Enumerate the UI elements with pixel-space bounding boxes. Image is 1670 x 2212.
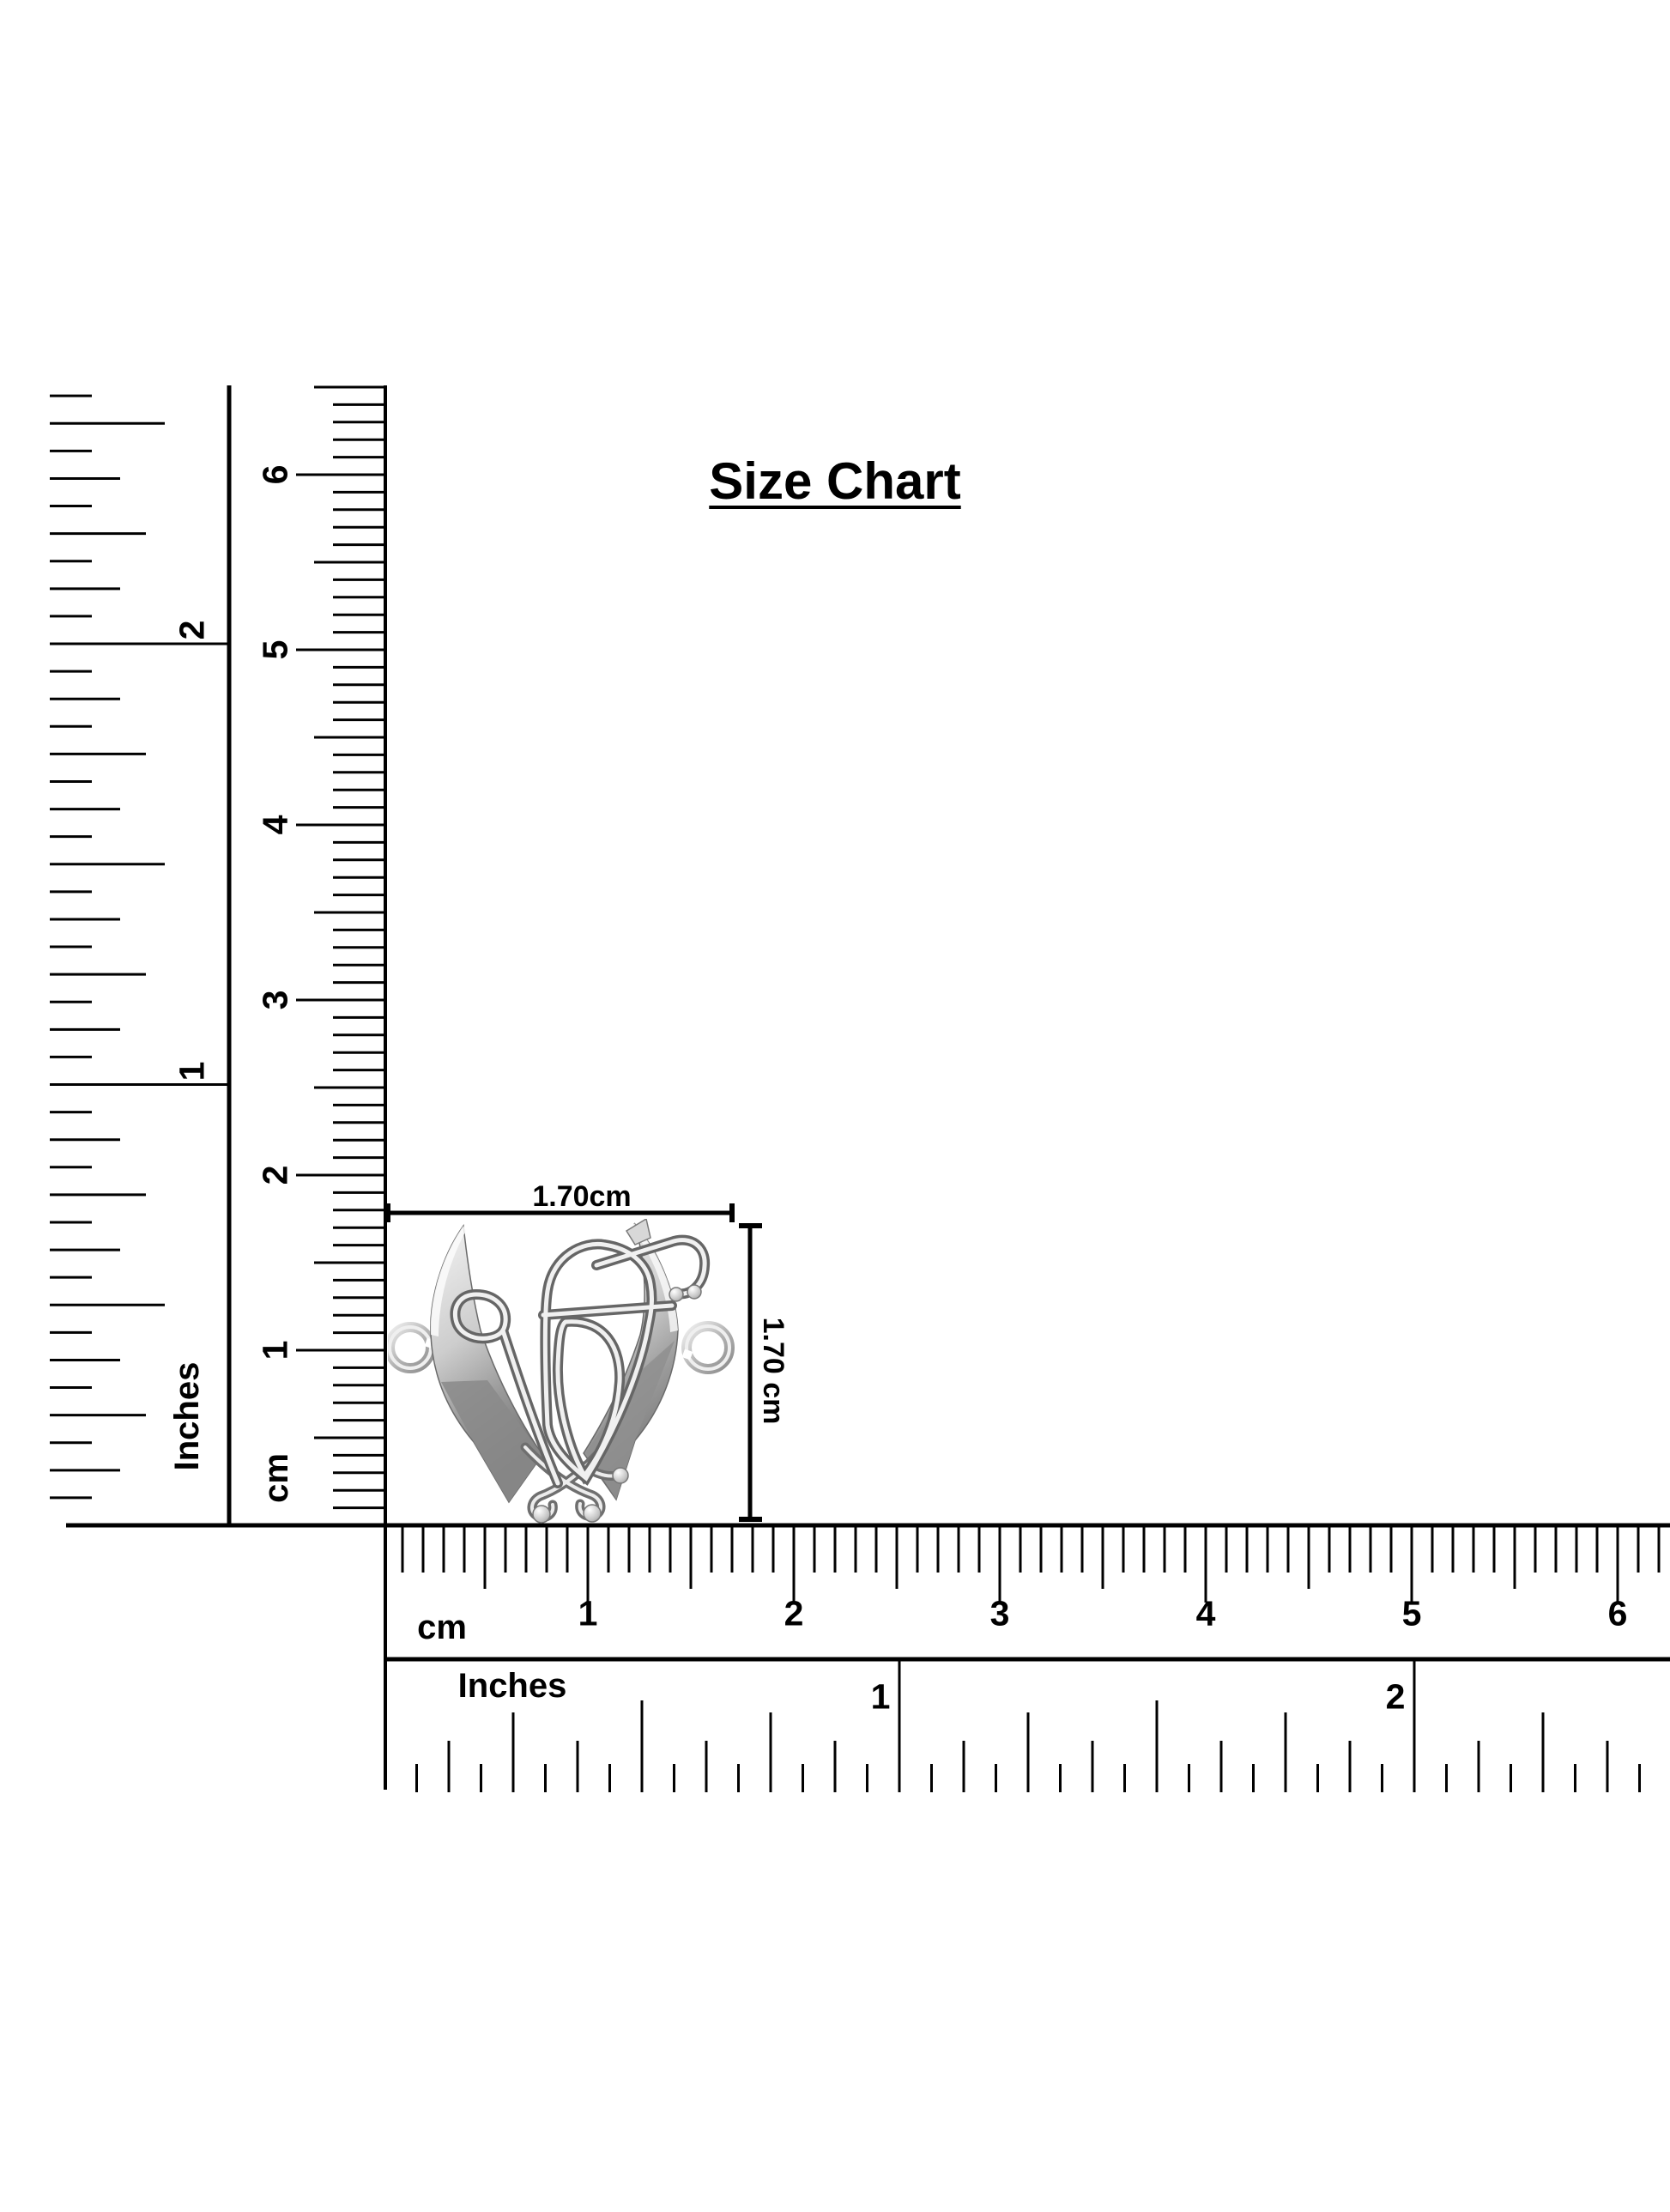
pendant-image (388, 1219, 748, 1528)
vertical-cm-tick-label: 1 (258, 1341, 293, 1361)
ruler-lines-layer (0, 0, 1670, 2212)
left-kirpan-blade (431, 1226, 542, 1502)
right-jump-ring-icon (682, 1326, 729, 1369)
horizontal-cm-tick-label: 1 (578, 1597, 598, 1632)
width-dimension-label: 1.70cm (532, 1182, 631, 1211)
horizontal-cm-tick-label: 3 (990, 1597, 1010, 1632)
horizontal-inch-tick-label: 2 (1386, 1680, 1406, 1715)
horizontal-cm-ruler-unit-label: cm (417, 1610, 467, 1645)
vertical-cm-tick-label: 2 (258, 1166, 293, 1185)
size-chart-canvas: Size Chart Inches cm cm Inches 1.70cm 1.… (0, 0, 1670, 2212)
vertical-cm-tick-label: 3 (258, 991, 293, 1010)
vertical-inch-tick-label: 2 (175, 621, 210, 640)
height-dimension-label: 1.70 cm (759, 1318, 788, 1425)
page-title: Size Chart (0, 451, 1670, 511)
vertical-cm-tick-label: 5 (258, 640, 293, 660)
horizontal-inch-tick-label: 1 (871, 1680, 891, 1715)
left-jump-ring-icon (390, 1327, 435, 1368)
horizontal-inch-ruler-unit-label: Inches (458, 1669, 567, 1703)
vertical-ruler-cm-unit-label: cm (259, 1453, 293, 1503)
vertical-cm-tick-label: 4 (258, 815, 293, 835)
horizontal-cm-tick-label: 5 (1402, 1597, 1422, 1632)
vertical-inch-tick-label: 1 (175, 1061, 210, 1081)
horizontal-cm-tick-label: 4 (1196, 1597, 1216, 1632)
vertical-cm-tick-label: 6 (258, 465, 293, 485)
horizontal-cm-tick-label: 2 (784, 1597, 804, 1632)
horizontal-cm-tick-label: 6 (1608, 1597, 1628, 1632)
vertical-ruler-inches-unit-label: Inches (170, 1362, 204, 1471)
